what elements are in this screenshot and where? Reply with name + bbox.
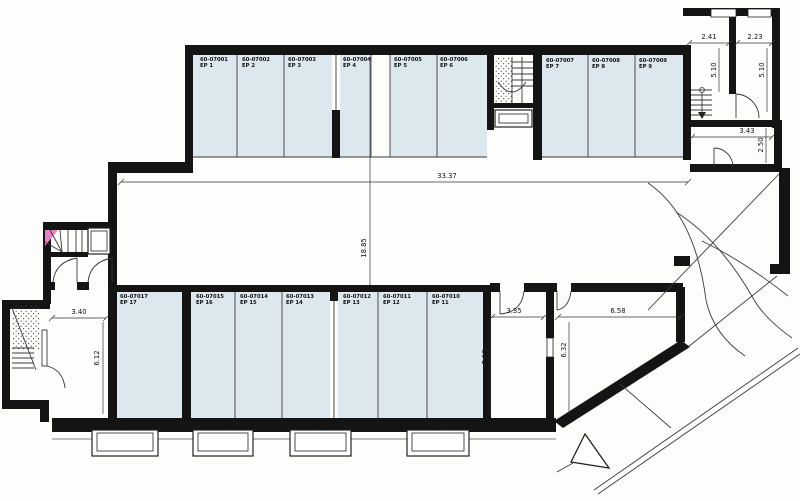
svg-text:6.58: 6.58 <box>610 307 625 315</box>
unit-ep-6: 60-07006 EP 6 <box>437 55 487 157</box>
unit-ep-15: 60-07014 EP 15 <box>235 292 282 418</box>
dim-br-room-height: 6.32 <box>560 322 569 414</box>
svg-text:2.50: 2.50 <box>757 137 765 152</box>
unit-label: EP 6 <box>440 63 453 69</box>
svg-text:18.85: 18.85 <box>360 238 368 257</box>
unit-ep-16: 60-07015 EP 16 <box>191 292 235 418</box>
stair-direction-arrow <box>698 112 706 119</box>
hatch-area <box>494 57 512 103</box>
dim-aisle-width: 33.37 <box>118 172 691 185</box>
unit-label: EP 7 <box>546 64 559 70</box>
dim-bl-room-height: 6.12 <box>93 322 103 414</box>
ramp-lower-edge <box>594 348 798 490</box>
unit-ep-13: 60-07012 EP 13 <box>338 292 378 418</box>
unit-ep-2: 60-07002 EP 2 <box>237 55 284 157</box>
floor-plan: 60-07001 EP 1 60-07002 EP 2 60-07003 EP … <box>0 0 800 501</box>
dim-tr-room2-height: 5.10 <box>758 48 767 112</box>
svg-text:3.43: 3.43 <box>739 127 754 135</box>
svg-text:5.10: 5.10 <box>710 62 718 77</box>
unit-label: EP 2 <box>242 63 255 69</box>
ramp-edge-line <box>688 276 777 347</box>
stairwell-top-right <box>691 88 712 119</box>
dim-br-room-width: 6.58 <box>555 307 684 320</box>
svg-text:33.37: 33.37 <box>437 172 456 180</box>
svg-text:3.35: 3.35 <box>506 307 521 315</box>
unit-label: EP 14 <box>286 300 303 306</box>
unit-label: EP 1 <box>200 63 213 69</box>
door-arc <box>736 94 759 118</box>
unit-label: EP 15 <box>240 300 257 306</box>
unit-label: EP 3 <box>288 63 301 69</box>
unit-ep-12: 60-07011 EP 12 <box>378 292 427 418</box>
door-arc <box>53 258 77 282</box>
unit-label: EP 11 <box>432 300 449 306</box>
unit-ep-8: 60-07008 EP 8 <box>588 55 635 157</box>
turning-curve <box>648 183 706 300</box>
door-arc <box>47 366 65 388</box>
dim-bl-room-width: 3.40 <box>49 308 109 321</box>
stairwell-bottom-left <box>12 305 40 370</box>
svg-text:5.10: 5.10 <box>758 62 766 77</box>
unit-ep-11: 60-07010 EP 11 <box>427 292 483 418</box>
ramp-crossbar <box>620 384 671 428</box>
unit-ep-3: 60-07003 EP 3 <box>284 55 332 157</box>
door-leaf <box>547 338 553 357</box>
unit-ep-4: 60-07004 EP 4 <box>340 55 371 157</box>
unit-ep-7: 60-07007 EP 7 <box>542 55 588 157</box>
unit-label: EP 4 <box>343 63 356 69</box>
unit-label: EP 9 <box>639 64 652 70</box>
svg-text:7.18: 7.18 <box>481 349 489 364</box>
turning-curve <box>753 298 792 338</box>
unit-label: EP 16 <box>196 300 213 306</box>
unit-ep-9: 60-07009 EP 9 <box>635 55 683 157</box>
bottom-unit-row: 60-07017 EP 17 60-07015 EP 16 60-07014 E… <box>115 292 483 418</box>
svg-text:2.41: 2.41 <box>701 33 716 41</box>
turning-curve <box>676 212 753 298</box>
unit-label: EP 8 <box>592 64 605 70</box>
door-arc <box>557 291 571 310</box>
dim-tr-room1-width: 2.41 <box>686 33 732 46</box>
top-unit-row: 60-07001 EP 1 60-07002 EP 2 60-07003 EP … <box>193 55 683 157</box>
ramp-direction-arrow <box>571 434 609 468</box>
unit-label: EP 12 <box>383 300 400 306</box>
door-leaf <box>42 330 47 366</box>
dim-tr-room2-width: 2.23 <box>734 33 775 46</box>
unit-ep-5: 60-07005 EP 5 <box>390 55 437 157</box>
unit-ep-17: 60-07017 EP 17 <box>115 292 182 418</box>
svg-text:6.12: 6.12 <box>93 350 101 365</box>
floor-plan-canvas: 60-07001 EP 1 60-07002 EP 2 60-07003 EP … <box>0 0 800 501</box>
unit-ep-14: 60-07013 EP 14 <box>282 292 330 418</box>
unit-label: EP 17 <box>120 300 137 306</box>
stairwell-top-middle <box>494 57 533 127</box>
stairwell-middle-left <box>45 228 110 254</box>
dim-tr-room1-height: 5.10 <box>710 48 719 92</box>
unit-label: EP 13 <box>343 300 360 306</box>
unit-label: EP 5 <box>394 63 407 69</box>
svg-text:6.32: 6.32 <box>560 342 568 357</box>
dim-tr-lower-height: 2.50 <box>757 128 766 163</box>
unit-ep-1: 60-07001 EP 1 <box>193 55 237 157</box>
dim-br-corridor-width: 3.35 <box>489 307 547 320</box>
svg-text:3.40: 3.40 <box>71 308 86 316</box>
svg-text:2.23: 2.23 <box>747 33 762 41</box>
